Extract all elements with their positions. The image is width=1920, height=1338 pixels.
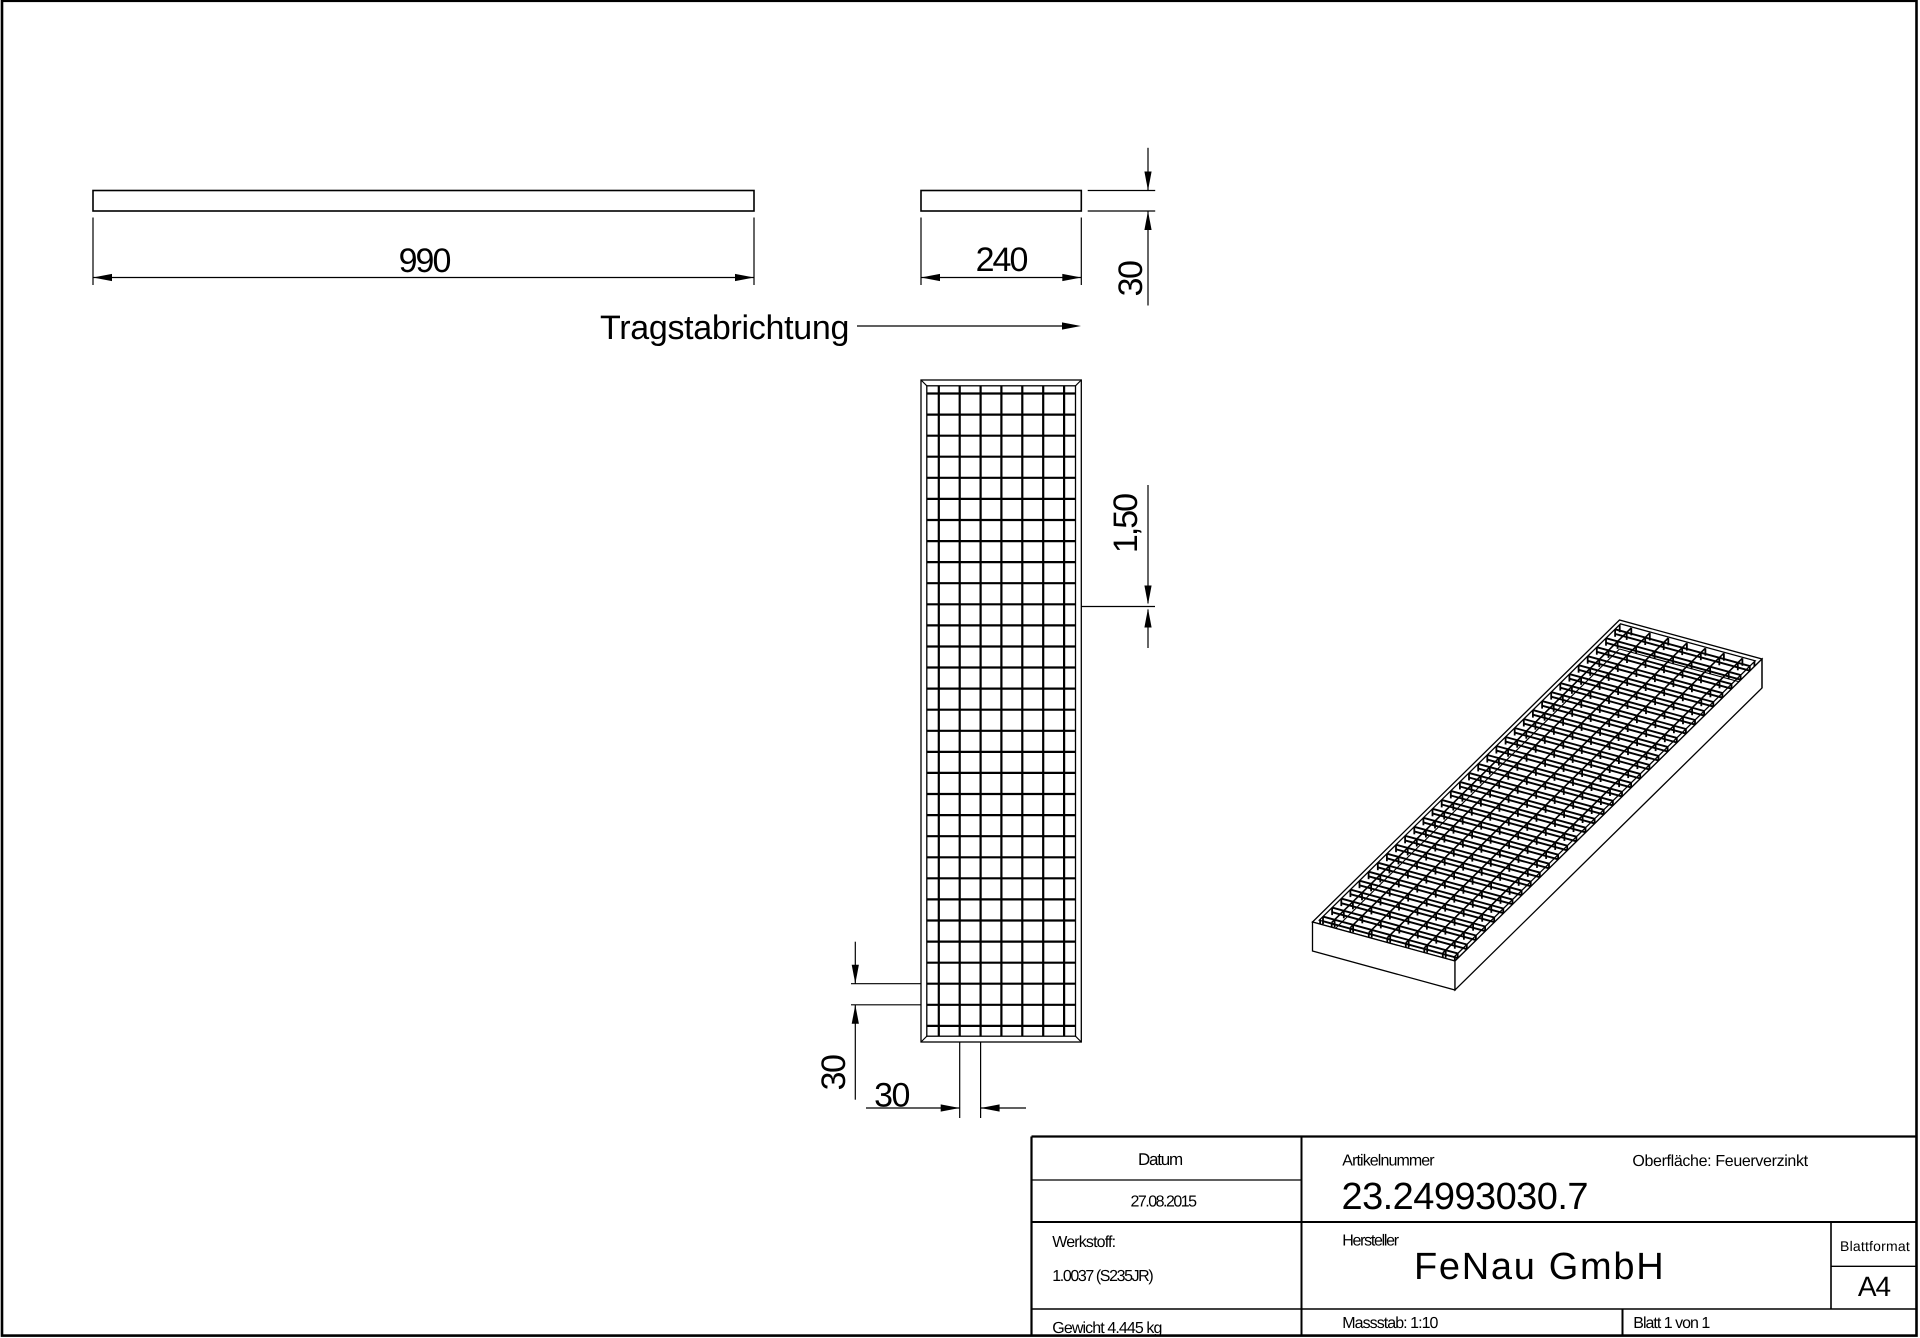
svg-text:Blatt 1 von 1: Blatt 1 von 1 <box>1633 1315 1710 1332</box>
svg-text:Oberfläche: Feuerverzinkt: Oberfläche: Feuerverzinkt <box>1632 1153 1808 1170</box>
svg-text:Blattformat: Blattformat <box>1840 1238 1910 1254</box>
svg-text:30: 30 <box>815 1055 853 1090</box>
svg-text:Gewicht 4.445 kg: Gewicht 4.445 kg <box>1052 1320 1161 1337</box>
svg-text:Hersteller: Hersteller <box>1342 1233 1399 1250</box>
svg-text:Werkstoff:: Werkstoff: <box>1052 1234 1115 1251</box>
svg-text:30: 30 <box>874 1077 909 1115</box>
svg-text:Datum: Datum <box>1138 1150 1183 1169</box>
svg-text:A4: A4 <box>1858 1271 1891 1302</box>
svg-text:27.08.2015: 27.08.2015 <box>1130 1194 1197 1211</box>
svg-text:1,50: 1,50 <box>1107 494 1145 553</box>
svg-text:240: 240 <box>976 241 1028 279</box>
svg-text:23.24993030.7: 23.24993030.7 <box>1342 1176 1588 1218</box>
svg-text:990: 990 <box>399 242 451 280</box>
svg-text:Artikelnummer: Artikelnummer <box>1342 1153 1435 1170</box>
svg-text:Tragstabrichtung: Tragstabrichtung <box>600 309 849 347</box>
svg-text:1.0037 (S235JR): 1.0037 (S235JR) <box>1052 1268 1153 1285</box>
svg-text:Massstab: 1:10: Massstab: 1:10 <box>1342 1315 1438 1332</box>
svg-text:FeNau GmbH: FeNau GmbH <box>1414 1246 1665 1288</box>
svg-text:30: 30 <box>1112 261 1150 296</box>
